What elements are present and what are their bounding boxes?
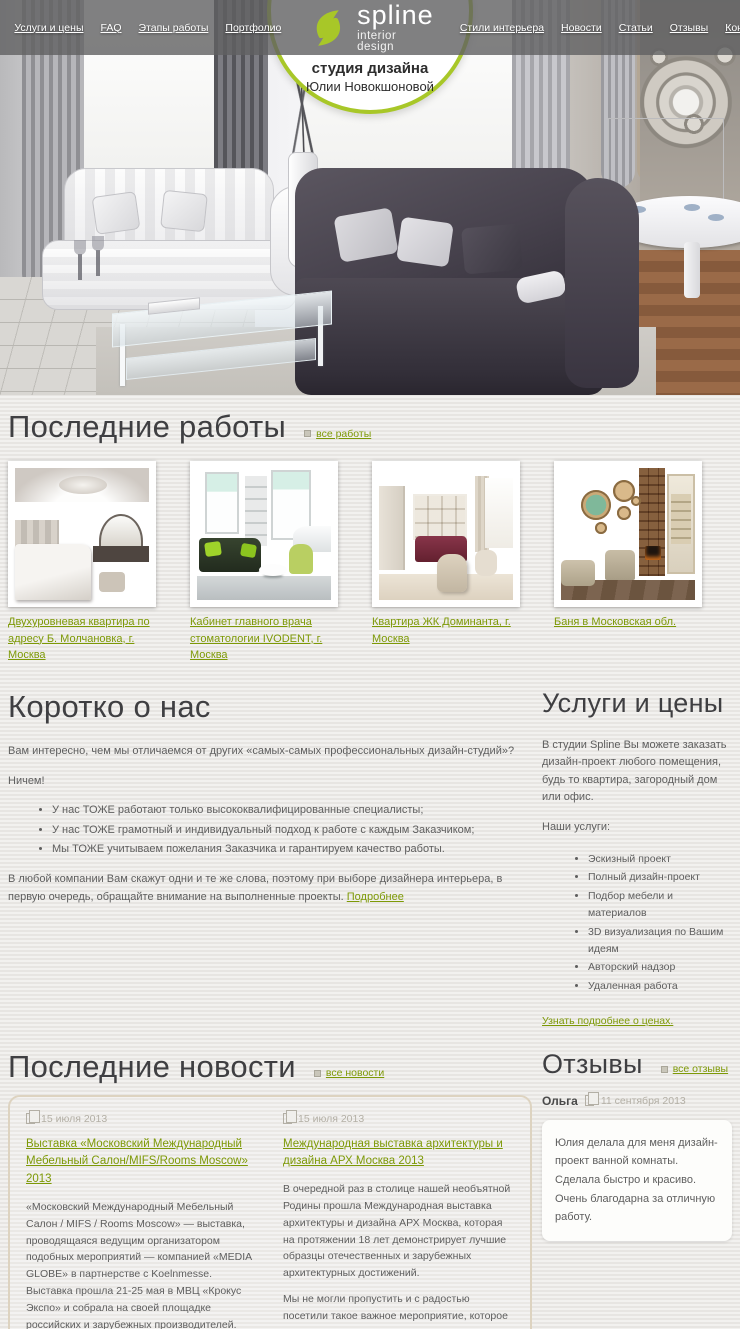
works-title: Последние работы [8,409,286,445]
service-item: Эскизный проект [588,851,732,868]
reviews-column: Отзывы все отзывы Ольга 11 сентября 2013… [542,1049,732,1329]
news-title-link[interactable]: Международная выставка архитектуры и диз… [283,1136,514,1172]
review-bubble: Юлия делала для меня дизайн-проект ванно… [542,1120,732,1241]
news-item: 15 июля 2013 Международная выставка архи… [283,1113,514,1329]
nav-item-services[interactable]: Услуги и цены [14,22,83,34]
work-thumbnail-link[interactable] [8,461,156,607]
news-reviews-section: Последние новости все новости 15 июля 20… [8,1049,732,1329]
about-column: Коротко о нас Вам интересно, чем мы отли… [8,682,532,1031]
square-bullet-icon [661,1066,668,1073]
pillow [396,217,454,268]
logo-name: spline [357,2,435,29]
news-paragraph: В очередной раз в столице нашей необъятн… [283,1181,514,1282]
all-works-label: все работы [316,428,371,440]
news-item: 15 июля 2013 Выставка «Московский Междун… [26,1113,257,1329]
all-news-label: все новости [326,1067,384,1079]
about-bullet: Мы ТОЖЕ учитываем пожелания Заказчика и … [52,841,532,859]
page: студия дизайна Юлии Новокшоновой О нас У… [0,0,740,1329]
review-author: Ольга [542,1094,578,1108]
glass-table-shelf [126,338,316,380]
work-thumbnail-link[interactable] [372,461,520,607]
works-cards: Двухуровневая квартира по адресу Б. Молч… [8,461,732,664]
badge-line1: студия дизайна [312,60,429,77]
news-date: 15 июля 2013 [298,1113,364,1125]
nav-item-faq[interactable]: FAQ [101,22,122,34]
work-caption: Баня в Московская обл. [554,614,702,631]
main-content: Последние работы все работы [0,395,740,1329]
work-caption-link[interactable]: Квартира ЖК Доминанта, г. Москва [372,614,520,647]
nav-item-news[interactable]: Новости [561,22,602,34]
glass-coffee-table [112,284,332,388]
document-icon [585,1095,594,1106]
service-item: Авторский надзор [588,959,732,976]
work-caption-link[interactable]: Баня в Московская обл. [554,614,702,631]
reviews-title: Отзывы [542,1049,643,1080]
square-bullet-icon [304,430,311,437]
news-paragraph: Мы не могли пропустить и с радостью посе… [283,1291,514,1329]
about-more-link[interactable]: Подробнее [347,891,404,903]
service-item: 3D визуализация по Вашим идеям [588,924,732,958]
pillow [160,190,208,232]
services-list-label: Наши услуги: [542,819,732,837]
news-title-link[interactable]: Выставка «Московский Международный Мебел… [26,1136,257,1189]
services-list: Эскизный проект Полный дизайн-проект Под… [588,851,732,995]
nav-item-contacts[interactable]: Контакты [725,22,740,34]
document-icon [26,1113,35,1124]
work-caption-link[interactable]: Кабинет главного врача стоматологии IVOD… [190,614,338,664]
work-caption: Кабинет главного врача стоматологии IVOD… [190,614,338,664]
news-title: Последние новости [8,1049,296,1085]
about-bullet: У нас ТОЖЕ грамотный и индивидуальный по… [52,822,532,840]
about-outro: В любой компании Вам скажут одни и те же… [8,871,532,906]
logo-tagline: interior design [357,31,435,54]
plate [708,214,724,221]
news-date-row: 15 июля 2013 [283,1113,514,1125]
review-date: 11 сентября 2013 [601,1095,686,1107]
hero-header: студия дизайна Юлии Новокшоновой О нас У… [0,0,740,395]
top-navigation: О нас Услуги и цены FAQ Этапы работы Пор… [0,0,740,55]
about-title: Коротко о нас [8,682,532,732]
nav-item-styles[interactable]: Стили интерьера [460,22,544,34]
work-card: Двухуровневая квартира по адресу Б. Молч… [8,461,156,664]
all-news-link[interactable]: все новости [314,1067,384,1079]
square-bullet-icon [314,1070,321,1077]
works-heading-row: Последние работы все работы [8,409,732,445]
reviews-heading-row: Отзывы все отзывы [542,1049,732,1080]
about-outro-text: В любой компании Вам скажут одни и те же… [8,873,502,903]
document-icon [283,1113,292,1124]
services-intro: В студии Spline Вы можете заказать дизай… [542,737,732,807]
about-intro: Вам интересно, чем мы отличаемся от друг… [8,743,532,761]
service-item: Удаленная работа [588,978,732,995]
services-column: Услуги и цены В студии Spline Вы можете … [542,682,732,1031]
news-date-row: 15 июля 2013 [26,1113,257,1125]
work-card: Кабинет главного врача стоматологии IVOD… [190,461,338,664]
leather-sofa-arm [565,178,639,388]
badge-line2: Юлии Новокшоновой [306,79,434,94]
news-panel: 15 июля 2013 Выставка «Московский Междун… [8,1095,532,1329]
logo-text: spline interior design [357,2,435,54]
prices-link[interactable]: Узнать подробнее о ценах. [542,1013,673,1030]
spline-leaf-icon [306,5,351,51]
plate [684,204,700,211]
work-thumbnail-link[interactable] [190,461,338,607]
wine-glass [96,250,100,276]
about-services-section: Коротко о нас Вам интересно, чем мы отли… [8,682,732,1031]
news-heading-row: Последние новости все новости [8,1049,532,1085]
pillow [461,224,523,275]
about-bullet-list: У нас ТОЖЕ работают только высококвалифи… [52,802,532,859]
nav-item-reviews[interactable]: Отзывы [670,22,708,34]
service-item: Полный дизайн-проект [588,869,732,886]
wine-glass [78,254,82,280]
all-reviews-link[interactable]: все отзывы [661,1063,728,1075]
latest-works-section: Последние работы все работы [8,409,732,664]
news-date: 15 июля 2013 [41,1113,107,1125]
about-bullet: У нас ТОЖЕ работают только высококвалифи… [52,802,532,820]
work-card: Баня в Московская обл. [554,461,702,664]
work-caption: Квартира ЖК Доминанта, г. Москва [372,614,520,647]
dining-table-leg [684,242,700,298]
all-reviews-label: все отзывы [673,1063,728,1075]
nav-item-portfolio[interactable]: Портфолио [225,22,281,34]
news-paragraph: «Московский Международный Мебельный Сало… [26,1199,257,1329]
pillow [92,191,141,235]
leather-sofa [295,168,637,395]
work-caption-link[interactable]: Двухуровневая квартира по адресу Б. Молч… [8,614,156,664]
news-column: Последние новости все новости 15 июля 20… [8,1049,532,1329]
services-title: Услуги и цены [542,682,732,725]
work-caption: Двухуровневая квартира по адресу Б. Молч… [8,614,156,664]
nav-item-articles[interactable]: Статьи [619,22,653,34]
work-card: Квартира ЖК Доминанта, г. Москва [372,461,520,664]
service-item: Подбор мебели и материалов [588,888,732,922]
review-header: Ольга 11 сентября 2013 [542,1094,732,1108]
logo[interactable]: spline interior design [306,2,435,54]
about-exclaim: Ничем! [8,773,532,791]
nav-item-stages[interactable]: Этапы работы [139,22,209,34]
all-works-link[interactable]: все работы [304,428,371,440]
work-thumbnail-link[interactable] [554,461,702,607]
